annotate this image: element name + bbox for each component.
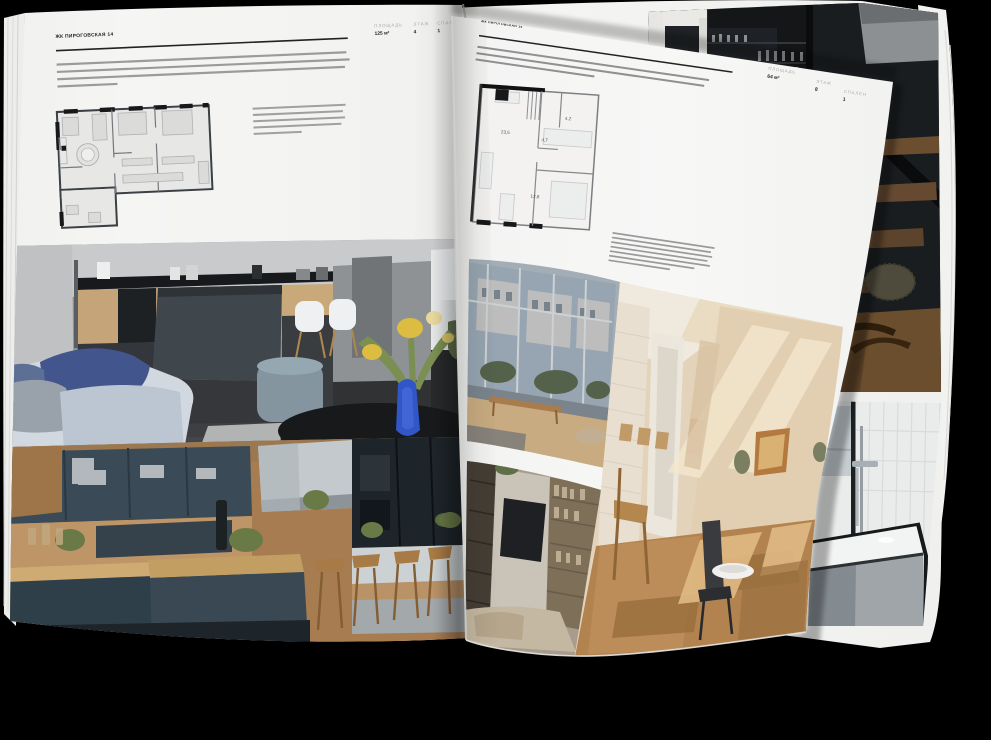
svg-text:4: 4 [413, 29, 416, 35]
svg-text:4,2: 4,2 [565, 116, 572, 121]
svg-text:23,5: 23,5 [501, 129, 511, 135]
svg-text:12,8: 12,8 [530, 194, 540, 200]
svg-text:4,7: 4,7 [541, 137, 548, 142]
svg-text:ЭТАЖ: ЭТАЖ [413, 21, 429, 27]
svg-text:125 м²: 125 м² [374, 30, 389, 37]
